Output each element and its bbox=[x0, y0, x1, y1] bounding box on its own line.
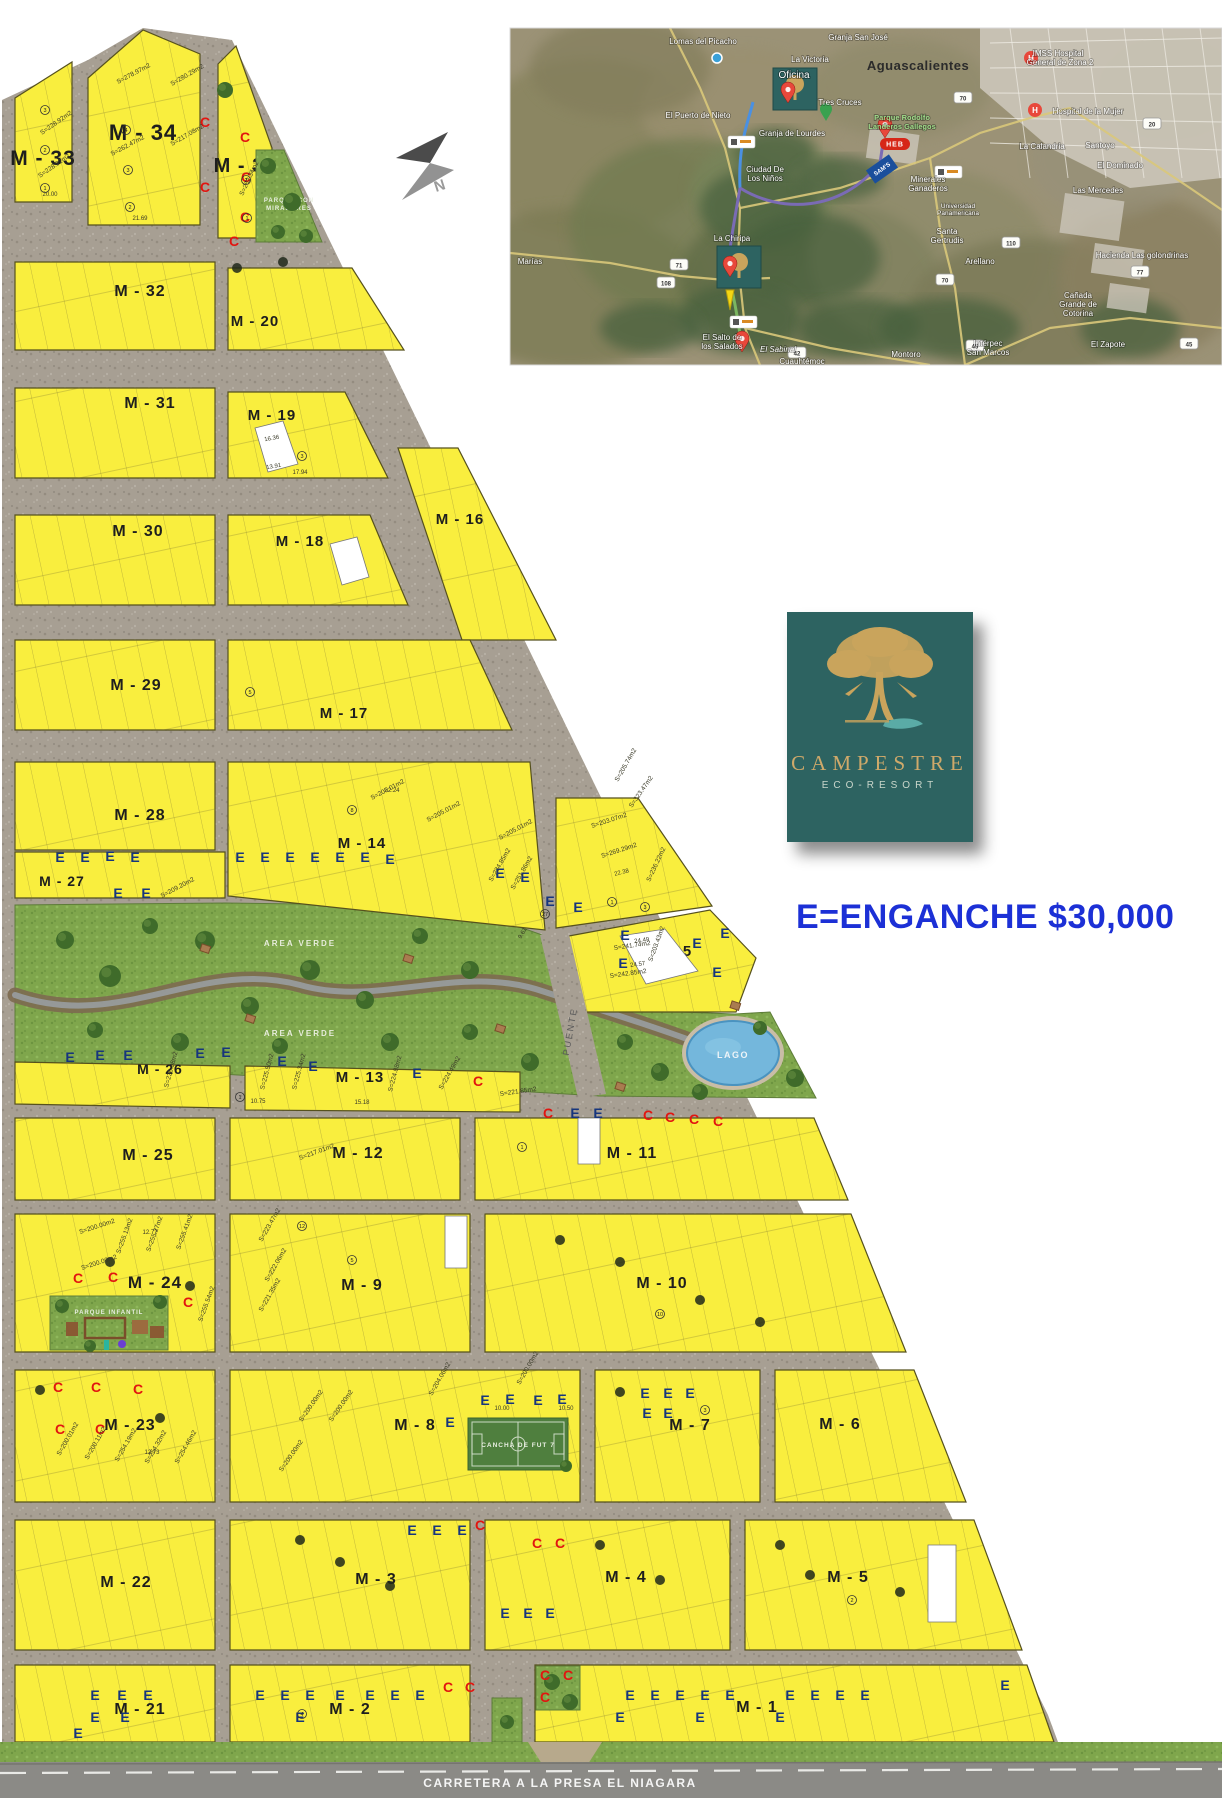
dimension-label: 12.77 bbox=[142, 1230, 158, 1236]
svg-text:8: 8 bbox=[350, 808, 353, 814]
block-M-4: M - 4 bbox=[485, 1520, 730, 1650]
map-label: La Calandria bbox=[1019, 142, 1065, 151]
mark-e: E bbox=[221, 1044, 230, 1060]
block-label-M-19: M - 19 bbox=[248, 407, 297, 424]
tree-icon bbox=[461, 961, 479, 979]
tree-dot-icon bbox=[615, 1387, 625, 1397]
block-label-M-4: M - 4 bbox=[605, 1569, 646, 1586]
block-M-25: M - 25 bbox=[15, 1118, 215, 1200]
block-M-26: M - 26 bbox=[15, 1061, 230, 1108]
dimension-label: 22.24 bbox=[384, 788, 400, 794]
svg-text:2: 2 bbox=[128, 205, 131, 211]
tree-dot-icon bbox=[805, 1570, 815, 1580]
map-label: Oficina bbox=[778, 70, 810, 81]
mark-e: E bbox=[407, 1522, 416, 1538]
mark-e: E bbox=[615, 1709, 624, 1725]
mark-e: E bbox=[1000, 1677, 1009, 1693]
tree-dot-icon bbox=[295, 1535, 305, 1545]
tree-dot-icon bbox=[278, 257, 288, 267]
mark-e: E bbox=[65, 1049, 74, 1065]
mark-c: C bbox=[108, 1269, 118, 1285]
mark-e: E bbox=[685, 1385, 694, 1401]
tree-icon bbox=[412, 928, 428, 944]
map-label: El Zapote bbox=[1091, 340, 1126, 349]
svg-text:27: 27 bbox=[542, 912, 548, 918]
map-label: Ganaderos bbox=[908, 184, 948, 193]
block-label-M-6: M - 6 bbox=[819, 1416, 860, 1433]
mark-c: C bbox=[200, 179, 210, 195]
block-label-M-24: M - 24 bbox=[128, 1273, 182, 1292]
block-M-12: M - 12 bbox=[230, 1118, 460, 1200]
block-M-20: M - 20 bbox=[228, 268, 404, 350]
tree-icon bbox=[356, 991, 374, 1009]
svg-text:70: 70 bbox=[960, 97, 967, 103]
tree-icon bbox=[381, 1033, 399, 1051]
block-M-2: M - 2 bbox=[230, 1665, 470, 1742]
tree-dot-icon bbox=[185, 1281, 195, 1291]
mark-c: C bbox=[475, 1517, 485, 1533]
block-M-23: M - 23 bbox=[15, 1370, 215, 1502]
block-M-11: M - 11 bbox=[475, 1118, 848, 1200]
mark-e: E bbox=[545, 1605, 554, 1621]
svg-text:12: 12 bbox=[299, 1224, 305, 1230]
mark-e: E bbox=[277, 1053, 286, 1069]
map-label: El Sabinal bbox=[760, 345, 796, 354]
mark-e: E bbox=[80, 849, 89, 865]
mark-c: C bbox=[563, 1667, 573, 1683]
mark-e: E bbox=[120, 1709, 129, 1725]
tree-icon bbox=[241, 997, 259, 1015]
svg-text:3: 3 bbox=[43, 108, 46, 114]
tree-icon bbox=[651, 1063, 669, 1081]
svg-text:71: 71 bbox=[676, 264, 683, 270]
svg-text:4: 4 bbox=[124, 128, 127, 134]
mark-e: E bbox=[642, 1405, 651, 1421]
block-label-M-10: M - 10 bbox=[636, 1275, 687, 1292]
mark-e: E bbox=[308, 1058, 317, 1074]
tree-dot-icon bbox=[335, 1557, 345, 1567]
mark-e: E bbox=[113, 885, 122, 901]
svg-text:H: H bbox=[1032, 106, 1038, 115]
tree-icon bbox=[153, 1295, 167, 1309]
map-label: Minerales bbox=[911, 175, 946, 184]
roadside-grass bbox=[0, 1742, 1222, 1764]
svg-text:5: 5 bbox=[248, 690, 251, 696]
mark-c: C bbox=[55, 1421, 65, 1437]
block-label-M-30: M - 30 bbox=[112, 523, 163, 540]
map-label: Santa bbox=[937, 227, 958, 236]
tree-icon bbox=[217, 82, 233, 98]
tree-icon bbox=[521, 1053, 539, 1071]
block-label-M-29: M - 29 bbox=[110, 677, 161, 694]
tree-icon bbox=[171, 1033, 189, 1051]
map-label: Los Niños bbox=[747, 174, 783, 183]
mark-e: E bbox=[593, 1105, 602, 1121]
mark-e: E bbox=[105, 848, 114, 864]
svg-text:1: 1 bbox=[520, 1145, 523, 1151]
mark-e: E bbox=[523, 1605, 532, 1621]
block-label-M-5: M - 5 bbox=[827, 1569, 868, 1586]
block-label-M-28: M - 28 bbox=[114, 807, 165, 824]
dimension-label: 10.00 bbox=[494, 1406, 510, 1412]
mark-e: E bbox=[675, 1687, 684, 1703]
svg-text:70: 70 bbox=[942, 279, 949, 285]
mark-e: E bbox=[860, 1687, 869, 1703]
road-number-badge: 110 bbox=[1002, 237, 1020, 248]
dimension-label: 17.94 bbox=[292, 470, 308, 476]
mark-e: E bbox=[412, 1065, 421, 1081]
block-label-M-9: M - 9 bbox=[341, 1277, 382, 1294]
map-label: Aguascalientes bbox=[867, 58, 969, 73]
map-label: Santoyo bbox=[1085, 141, 1115, 150]
mark-c: C bbox=[689, 1111, 699, 1127]
dimension-label: 12.73 bbox=[144, 1450, 160, 1456]
tree-icon bbox=[299, 229, 313, 243]
mark-c: C bbox=[532, 1535, 542, 1551]
tree-dot-icon bbox=[555, 1235, 565, 1245]
tree-dot-icon bbox=[155, 1413, 165, 1423]
tree-icon bbox=[560, 1460, 572, 1472]
map-label: Cañada bbox=[1064, 291, 1093, 300]
tree-icon bbox=[562, 1694, 578, 1710]
mark-e: E bbox=[505, 1391, 514, 1407]
white-lot bbox=[928, 1545, 956, 1622]
block-label-M-18: M - 18 bbox=[276, 533, 325, 550]
map-label: Grande de bbox=[1059, 300, 1097, 309]
block-M-28: M - 28 bbox=[15, 762, 215, 850]
lotification-plan-page: M - 33M - 34M - 35M - 32M - 20M - 31M - … bbox=[0, 0, 1222, 1798]
lago-label: LAGO bbox=[717, 1050, 749, 1060]
svg-text:4: 4 bbox=[300, 1712, 303, 1718]
mark-e: E bbox=[810, 1687, 819, 1703]
mark-c: C bbox=[543, 1105, 553, 1121]
mark-e: E bbox=[640, 1385, 649, 1401]
block-M-3: M - 3 bbox=[230, 1520, 470, 1650]
mark-e: E bbox=[385, 851, 394, 867]
tree-icon bbox=[56, 931, 74, 949]
tree-icon bbox=[142, 918, 158, 934]
mark-e: E bbox=[618, 955, 627, 971]
svg-text:3: 3 bbox=[300, 454, 303, 460]
mark-c: C bbox=[465, 1679, 475, 1695]
road-number-badge: 108 bbox=[657, 277, 675, 288]
travel-time-box bbox=[728, 136, 755, 148]
mark-e: E bbox=[663, 1405, 672, 1421]
svg-text:3: 3 bbox=[643, 905, 646, 911]
svg-text:3: 3 bbox=[126, 168, 129, 174]
block-label-M-25: M - 25 bbox=[122, 1147, 173, 1164]
logo-subtitle: ECO-RESORT bbox=[822, 780, 939, 791]
tree-dot-icon bbox=[385, 1581, 395, 1591]
map-label: Arellano bbox=[965, 257, 995, 266]
tree-icon bbox=[271, 225, 285, 239]
mark-e: E bbox=[360, 849, 369, 865]
tree-dot-icon bbox=[695, 1295, 705, 1305]
mark-c: C bbox=[229, 233, 239, 249]
svg-text:2: 2 bbox=[850, 1598, 853, 1604]
mark-c: C bbox=[183, 1294, 193, 1310]
mark-e: E bbox=[195, 1045, 204, 1061]
road-number-badge: 20 bbox=[1143, 118, 1161, 129]
block-M-21: M - 21 bbox=[15, 1665, 215, 1742]
map-label: Lomas del Picacho bbox=[669, 37, 737, 46]
logo-tree-icon bbox=[805, 612, 955, 747]
block-label-M-20: M - 20 bbox=[231, 313, 280, 330]
tree-dot-icon bbox=[895, 1587, 905, 1597]
block-label-M-31: M - 31 bbox=[124, 395, 175, 412]
block-M-29: M - 29 bbox=[15, 640, 215, 730]
mark-c: C bbox=[53, 1379, 63, 1395]
block-label-M-12: M - 12 bbox=[332, 1145, 383, 1162]
svg-text:1: 1 bbox=[610, 900, 613, 906]
tree-icon bbox=[462, 1024, 478, 1040]
road-number-badge: 70 bbox=[936, 274, 954, 285]
map-label: El Dominado bbox=[1097, 161, 1143, 170]
mark-e: E bbox=[335, 849, 344, 865]
tree-icon bbox=[260, 158, 276, 174]
mark-e: E bbox=[785, 1687, 794, 1703]
svg-text:PARQUE INFANTIL: PARQUE INFANTIL bbox=[75, 1310, 144, 1316]
map-label: Hospital de la Mujer bbox=[1053, 107, 1124, 116]
mark-e: E bbox=[255, 1687, 264, 1703]
mark-e: E bbox=[335, 1687, 344, 1703]
block-label-M-2: M - 2 bbox=[329, 1701, 370, 1718]
map-label: Intérpec bbox=[974, 339, 1003, 348]
mark-e: E bbox=[545, 893, 554, 909]
logo-card: CAMPESTRE ECO-RESORT bbox=[787, 612, 973, 842]
block-label-M-16: M - 16 bbox=[436, 511, 485, 528]
mark-c: C bbox=[540, 1667, 550, 1683]
mark-e: E bbox=[365, 1687, 374, 1703]
block-label-M-32: M - 32 bbox=[114, 283, 165, 300]
tree-icon bbox=[272, 1038, 288, 1054]
block-label-M-1: M - 1 bbox=[736, 1699, 777, 1716]
mark-e: E bbox=[117, 1687, 126, 1703]
dimension-label: 21.69 bbox=[132, 216, 148, 222]
mark-e: E bbox=[570, 1105, 579, 1121]
tree-icon bbox=[500, 1715, 514, 1729]
tree-icon bbox=[617, 1034, 633, 1050]
svg-text:110: 110 bbox=[1006, 242, 1016, 248]
mark-e: E bbox=[700, 1687, 709, 1703]
map-label: Ciudad De bbox=[746, 165, 784, 174]
lot-area-label: S=205.74m2 bbox=[614, 747, 639, 783]
block-label-M-8: M - 8 bbox=[394, 1417, 435, 1434]
map-label: El Salto de bbox=[703, 333, 742, 342]
tree-dot-icon bbox=[775, 1540, 785, 1550]
road-number-badge: 70 bbox=[954, 92, 972, 103]
hospital-pin-icon: H bbox=[1028, 103, 1042, 117]
svg-text:20: 20 bbox=[1149, 123, 1156, 129]
tree-dot-icon bbox=[615, 1257, 625, 1267]
highway-label: CARRETERA A LA PRESA EL NIAGARA bbox=[423, 1776, 696, 1790]
compass-n-label: N bbox=[432, 176, 448, 196]
mark-e: E bbox=[260, 849, 269, 865]
mark-e: E bbox=[305, 1687, 314, 1703]
area-verde-label: AREA VERDE bbox=[264, 939, 336, 948]
block-M-10: M - 10 bbox=[485, 1214, 906, 1352]
map-label: Cotorina bbox=[1063, 309, 1094, 318]
svg-text:5: 5 bbox=[350, 1258, 353, 1264]
road-number-badge: 77 bbox=[1131, 266, 1149, 277]
mark-e: E bbox=[712, 964, 721, 980]
mark-e: E bbox=[235, 849, 244, 865]
mini-campestre-logo bbox=[717, 246, 761, 288]
mark-e: E bbox=[650, 1687, 659, 1703]
map-label: General de Zona 2 bbox=[1027, 58, 1094, 67]
tree-icon bbox=[84, 1340, 96, 1352]
mark-e: E bbox=[692, 935, 701, 951]
svg-text:1: 1 bbox=[238, 1095, 241, 1101]
map-label: La Chiripa bbox=[714, 234, 751, 243]
tree-icon bbox=[55, 1299, 69, 1313]
dimension-label: 20.00 bbox=[42, 192, 58, 198]
tree-dot-icon bbox=[35, 1385, 45, 1395]
mark-e: E bbox=[73, 1725, 82, 1741]
mark-e: E bbox=[720, 925, 729, 941]
tree-icon bbox=[786, 1069, 804, 1087]
tree-icon bbox=[753, 1021, 767, 1035]
map-label: Universidad bbox=[941, 203, 976, 210]
mark-e: E bbox=[663, 1385, 672, 1401]
block-label-M-22: M - 22 bbox=[100, 1574, 151, 1591]
mark-e: E bbox=[625, 1687, 634, 1703]
block-M-22: M - 22 bbox=[15, 1520, 215, 1650]
mark-e: E bbox=[310, 849, 319, 865]
map-label: Marías bbox=[518, 257, 542, 266]
tree-icon bbox=[99, 965, 121, 987]
mark-c: C bbox=[91, 1379, 101, 1395]
travel-time-box bbox=[730, 316, 757, 328]
map-label: IMSS Hospital bbox=[1033, 49, 1084, 58]
mark-e: E bbox=[695, 1709, 704, 1725]
block-M-1: M - 1 bbox=[535, 1665, 1054, 1742]
mark-e: E bbox=[95, 1047, 104, 1063]
svg-text:108: 108 bbox=[661, 282, 672, 288]
map-label: Gertrudis bbox=[931, 236, 964, 245]
block-M-6: M - 6 bbox=[775, 1370, 966, 1502]
map-label: Parque Rodolfo bbox=[874, 113, 930, 122]
road-number-badge: 45 bbox=[1180, 338, 1198, 349]
map-label: La Victoria bbox=[791, 55, 829, 64]
mark-e: E bbox=[457, 1522, 466, 1538]
mark-c: C bbox=[665, 1109, 675, 1125]
map-label: Hacienda Las golondrinas bbox=[1096, 251, 1189, 260]
block-label-M-17: M - 17 bbox=[320, 705, 369, 722]
mark-e: E bbox=[620, 927, 629, 943]
block-M-30: M - 30 bbox=[15, 515, 215, 605]
dimension-label: 10.75 bbox=[250, 1099, 266, 1105]
mark-e: E bbox=[143, 1687, 152, 1703]
block-M-17: M - 17 bbox=[228, 640, 512, 730]
mark-c: C bbox=[443, 1679, 453, 1695]
mark-e: E bbox=[835, 1687, 844, 1703]
white-lot bbox=[445, 1216, 467, 1268]
mark-e: E bbox=[90, 1687, 99, 1703]
svg-text:1: 1 bbox=[245, 216, 248, 222]
mark-c: C bbox=[540, 1689, 550, 1705]
tree-icon bbox=[283, 193, 301, 211]
bottom-road-layer: CARRETERA A LA PRESA EL NIAGARA bbox=[0, 1742, 1222, 1798]
tree-dot-icon bbox=[655, 1575, 665, 1585]
block-M-5: M - 5 bbox=[745, 1520, 1022, 1650]
mark-c: C bbox=[240, 129, 250, 145]
tree-icon bbox=[300, 960, 320, 980]
mark-e: E bbox=[557, 1391, 566, 1407]
mark-c: C bbox=[713, 1113, 723, 1129]
svg-text:77: 77 bbox=[1137, 271, 1144, 277]
svg-text:2: 2 bbox=[244, 178, 247, 184]
area-verde-label: AREA VERDE bbox=[264, 1029, 336, 1038]
white-lot bbox=[578, 1118, 600, 1164]
svg-text:10: 10 bbox=[657, 1312, 663, 1318]
block-M-32: M - 32 bbox=[15, 262, 215, 350]
mark-e: E bbox=[533, 1392, 542, 1408]
mark-e: E bbox=[500, 1605, 509, 1621]
mark-c: C bbox=[643, 1107, 653, 1123]
legend-enganche: E=ENGANCHE $30,000 bbox=[796, 898, 1174, 937]
map-label: Landeros Gallegos bbox=[868, 122, 936, 131]
block-label-M-13: M - 13 bbox=[336, 1069, 385, 1086]
mark-e: E bbox=[285, 849, 294, 865]
mark-e: E bbox=[141, 885, 150, 901]
svg-text:45: 45 bbox=[1186, 343, 1193, 349]
mark-c: C bbox=[133, 1381, 143, 1397]
tree-dot-icon bbox=[232, 263, 242, 273]
block-label-M-11: M - 11 bbox=[607, 1145, 657, 1162]
tree-icon bbox=[692, 1084, 708, 1100]
mark-c: C bbox=[473, 1073, 483, 1089]
mark-c: C bbox=[555, 1535, 565, 1551]
dimension-label: 10.50 bbox=[558, 1406, 574, 1412]
mark-e: E bbox=[725, 1687, 734, 1703]
map-label: Granja de Lourdes bbox=[759, 129, 825, 138]
tree-dot-icon bbox=[755, 1317, 765, 1327]
map-label: Montoro bbox=[891, 350, 921, 359]
map-label: Tres Cruces bbox=[818, 98, 861, 107]
map-label: los Salados bbox=[701, 342, 742, 351]
map-label: San Marcos bbox=[967, 348, 1010, 357]
mark-e: E bbox=[415, 1687, 424, 1703]
compass-north-arrow: N bbox=[396, 132, 454, 200]
map-label: Panamericana bbox=[937, 210, 979, 217]
blue-pin-icon bbox=[712, 53, 722, 63]
dimension-label: 15.18 bbox=[354, 1100, 370, 1106]
svg-text:CANCHA DE FUT 7: CANCHA DE FUT 7 bbox=[481, 1442, 555, 1449]
map-label: Las Mercedes bbox=[1073, 186, 1123, 195]
block-M-31: M - 31 bbox=[15, 388, 215, 478]
mark-e: E bbox=[390, 1687, 399, 1703]
mark-e: E bbox=[123, 1047, 132, 1063]
svg-text:3: 3 bbox=[703, 1408, 706, 1414]
tree-icon bbox=[87, 1022, 103, 1038]
block-label-M-27: M - 27 bbox=[39, 873, 85, 889]
mark-e: E bbox=[130, 849, 139, 865]
cancha-fut7: CANCHA DE FUT 7 bbox=[468, 1418, 568, 1470]
svg-text:1: 1 bbox=[43, 186, 46, 192]
mark-e: E bbox=[55, 849, 64, 865]
tree-dot-icon bbox=[595, 1540, 605, 1550]
map-label: Granja San José bbox=[828, 33, 888, 42]
logo-title: CAMPESTRE bbox=[791, 751, 969, 776]
map-label: El Puerto de Nieto bbox=[666, 111, 731, 120]
mark-e: E bbox=[480, 1392, 489, 1408]
mark-e: E bbox=[90, 1709, 99, 1725]
svg-text:HEB: HEB bbox=[886, 142, 904, 149]
road-number-badge: 71 bbox=[670, 259, 688, 270]
mark-e: E bbox=[432, 1522, 441, 1538]
inset-satellite-map: HHHEBSAM'S7110870704542110772045Aguascal… bbox=[440, 18, 1222, 378]
